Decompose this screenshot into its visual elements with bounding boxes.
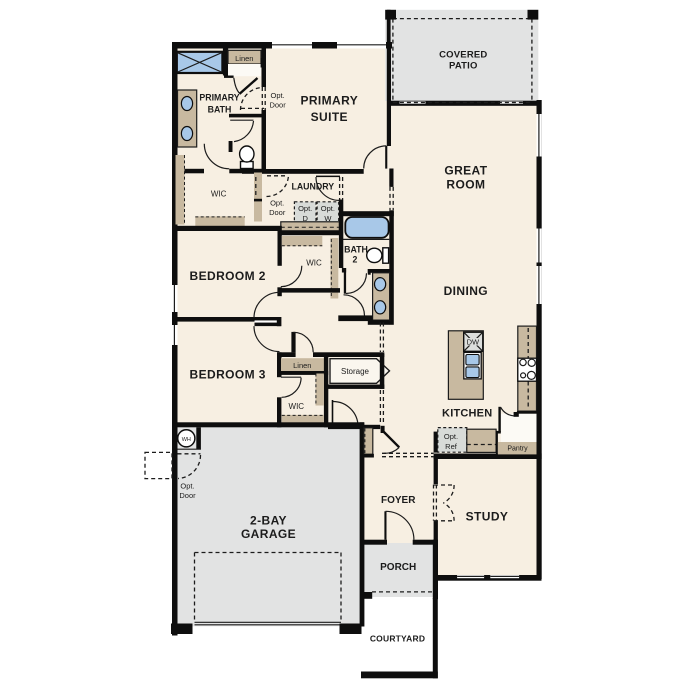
svg-text:Opt.: Opt. [271,91,285,100]
svg-text:PRIMARY: PRIMARY [300,93,358,107]
svg-text:PORCH: PORCH [380,562,416,573]
svg-text:PATIO: PATIO [449,61,478,72]
svg-text:COVERED: COVERED [439,50,487,61]
svg-text:GARAGE: GARAGE [241,527,296,541]
svg-text:DW: DW [467,338,480,347]
svg-text:Door: Door [269,208,286,217]
svg-text:2-BAY: 2-BAY [250,514,287,528]
svg-text:DINING: DINING [444,284,488,298]
svg-text:Linen: Linen [235,54,253,63]
svg-text:LAUNDRY: LAUNDRY [291,182,334,192]
svg-text:ROOM: ROOM [446,178,485,192]
svg-text:Opt.: Opt. [270,199,284,208]
svg-text:Opt.: Opt. [321,204,335,213]
svg-text:SUITE: SUITE [311,110,348,124]
svg-text:PRIMARY: PRIMARY [199,92,239,102]
svg-text:Door: Door [269,101,286,110]
svg-text:WH: WH [182,437,191,443]
svg-text:Opt.: Opt. [444,432,458,441]
svg-text:Ref: Ref [445,442,458,451]
svg-text:Opt.: Opt. [298,204,312,213]
svg-text:KITCHEN: KITCHEN [442,408,492,420]
svg-text:WIC: WIC [211,189,227,198]
svg-text:BATH: BATH [344,245,368,255]
svg-text:BEDROOM 2: BEDROOM 2 [190,269,266,283]
svg-text:WIC: WIC [289,402,305,411]
svg-text:COURTYARD: COURTYARD [370,634,425,644]
svg-text:Pantry: Pantry [507,446,528,453]
svg-text:Storage: Storage [341,367,370,376]
svg-text:STUDY: STUDY [466,510,509,524]
svg-text:WIC: WIC [306,259,322,268]
svg-text:Linen: Linen [293,361,311,370]
svg-text:Opt.: Opt. [180,482,194,491]
svg-text:FOYER: FOYER [381,495,416,506]
svg-text:2: 2 [353,255,358,265]
svg-text:BATH: BATH [208,105,232,115]
svg-text:BEDROOM 3: BEDROOM 3 [190,367,266,381]
svg-text:GREAT: GREAT [444,164,487,178]
svg-text:Door: Door [179,491,196,500]
